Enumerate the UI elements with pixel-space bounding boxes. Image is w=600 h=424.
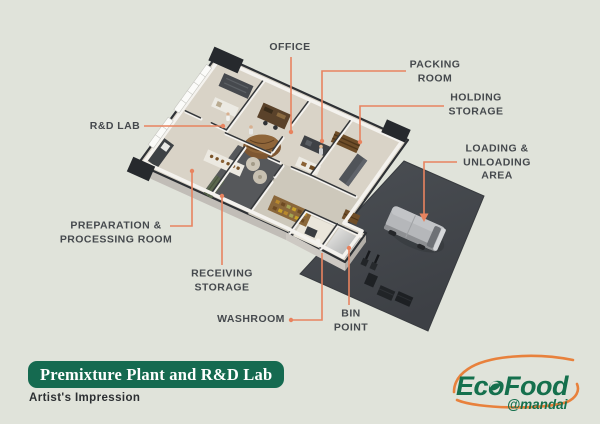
label-prep-room: PREPARATION & PROCESSING ROOM [60, 219, 172, 246]
label-washroom: WASHROOM [217, 313, 285, 327]
floorplan-scene: EcoFood @mandai OFFICE PACKING ROOM HOLD… [0, 0, 600, 424]
label-loading-area: LOADING & UNLOADING AREA [463, 143, 531, 184]
ecofood-logo: EcoFood @mandai [454, 356, 578, 412]
label-bin-point: BIN POINT [334, 307, 368, 334]
label-rd-lab: R&D LAB [90, 120, 140, 134]
logo-handle-text: @mandai [507, 397, 568, 412]
person [226, 112, 230, 121]
title-banner: Premixture Plant and R&D Lab [28, 361, 284, 388]
label-holding-storage: HOLDING STORAGE [449, 91, 504, 118]
person [319, 145, 323, 155]
person [249, 125, 253, 134]
table-center [258, 175, 262, 179]
subtitle-text: Artist's Impression [29, 393, 140, 405]
label-office: OFFICE [269, 41, 310, 55]
label-receiving-storage: RECEIVING STORAGE [191, 267, 253, 294]
table-center [251, 162, 255, 166]
label-packing-room: PACKING ROOM [410, 58, 461, 85]
